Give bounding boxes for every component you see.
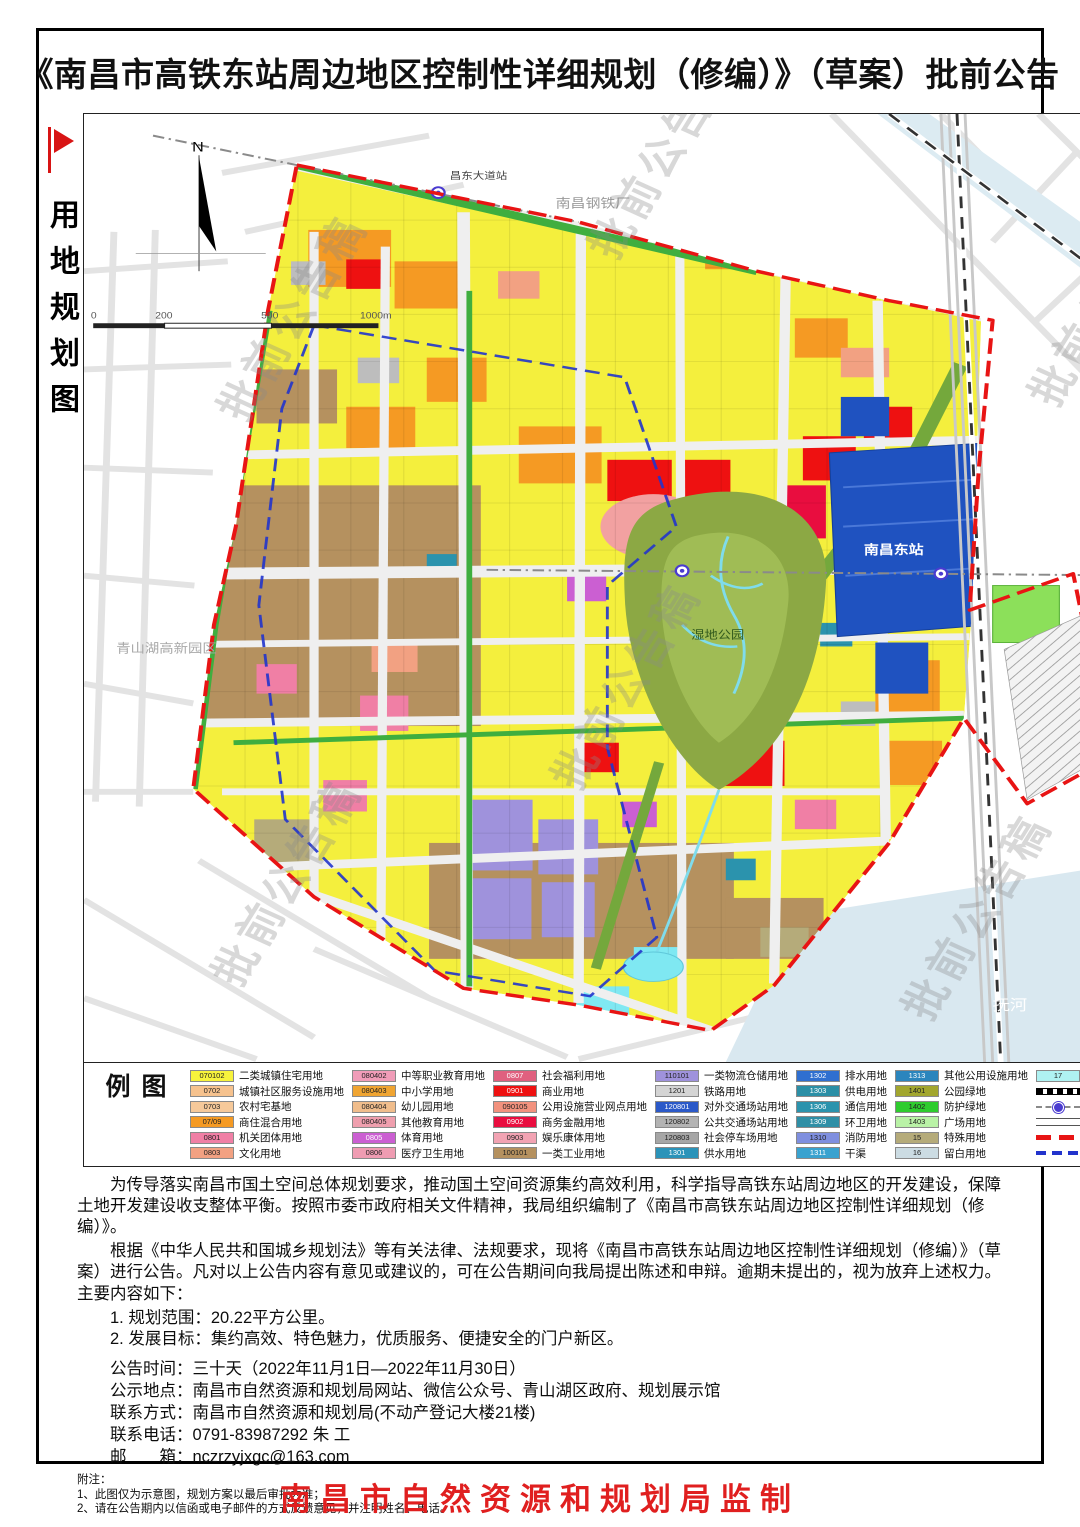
legend: 图例 070102二类城镇住宅用地0702城镇社区服务设施用地0703农村宅基地… [84, 1062, 1080, 1166]
legend-item: 080402中等职业教育用地 [352, 1069, 485, 1082]
legend-item-label: 环卫用地 [845, 1115, 887, 1130]
legend-item: 120801对外交通场站用地 [655, 1100, 788, 1113]
map-frame: 南昌钢铁厂 青山湖高新园区 抚河 昌东大道站 南昌东站 湿地公园 批前公告稿 批… [83, 113, 1080, 1167]
legend-column: 080402中等职业教育用地080403中小学用地080404幼儿园用地0804… [352, 1069, 485, 1162]
legend-item: 0703农村宅基地 [190, 1100, 344, 1113]
legend-column: 17陆地水域铁路地铁线及站点城市道路规划范围核心区范围 [1036, 1069, 1080, 1162]
legend-swatch: 15 [895, 1132, 939, 1144]
schedule-label: 公告时间： [110, 1360, 193, 1378]
legend-swatch: 100101 [493, 1147, 537, 1159]
schedule-line: 邮 箱：nczrzyjxgc@163.com [110, 1447, 1007, 1469]
railway-symbol-icon [1036, 1085, 1080, 1097]
schedule-line: 联系方式：南昌市自然资源和规划局(不动产登记大楼21楼) [110, 1403, 1007, 1425]
legend-swatch: 080402 [352, 1070, 396, 1082]
legend-item-label: 商住混合用地 [239, 1115, 302, 1130]
legend-swatch: 1310 [796, 1132, 840, 1144]
legend-item: 15特殊用地 [895, 1131, 1028, 1144]
legend-item-label: 留白用地 [944, 1146, 986, 1161]
legend-item-label: 社会停车场用地 [704, 1130, 778, 1145]
legend-item-label: 通信用地 [845, 1099, 887, 1114]
plan-symbol-icon [1036, 1132, 1080, 1144]
legend-item: 100101一类工业用地 [493, 1147, 647, 1160]
legend-swatch: 1201 [655, 1085, 699, 1097]
hi-tech-zone-label: 青山湖高新园区 [116, 640, 217, 655]
legend-item-label: 二类城镇住宅用地 [239, 1068, 323, 1083]
legend-item: 16留白用地 [895, 1147, 1028, 1160]
legend-item: 120803社会停车场用地 [655, 1131, 788, 1144]
legend-item-label: 一类工业用地 [542, 1146, 605, 1161]
legend-heading: 图例 [98, 1073, 170, 1162]
legend-swatch: 120802 [655, 1116, 699, 1128]
legend-item: 1306通信用地 [796, 1100, 887, 1113]
legend-swatch: 0806 [352, 1147, 396, 1159]
legend-item-label: 公共交通场站用地 [704, 1115, 788, 1130]
legend-item-label: 城镇社区服务设施用地 [239, 1084, 344, 1099]
map-area: 南昌钢铁厂 青山湖高新园区 抚河 昌东大道站 南昌东站 湿地公园 批前公告稿 批… [84, 114, 1080, 1062]
road-symbol-icon [1036, 1116, 1080, 1128]
legend-symbol-item: 核心区范围 [1036, 1147, 1080, 1160]
legend-item: 0807社会福利用地 [493, 1069, 647, 1082]
legend-item: 07/09商住混合用地 [190, 1116, 344, 1129]
svg-text:N: N [192, 139, 204, 155]
core-symbol-icon [1036, 1147, 1080, 1159]
legend-item: 070102二类城镇住宅用地 [190, 1069, 344, 1082]
legend-swatch: 1306 [796, 1101, 840, 1113]
svg-text:200: 200 [155, 311, 172, 321]
legend-swatch: 0807 [493, 1070, 537, 1082]
legend-item: 0806医疗卫生用地 [352, 1147, 485, 1160]
legend-swatch: 0702 [190, 1085, 234, 1097]
legend-item: 17陆地水域 [1036, 1069, 1080, 1082]
landuse-map: 南昌钢铁厂 青山湖高新园区 抚河 昌东大道站 南昌东站 湿地公园 批前公告稿 批… [84, 114, 1080, 1062]
river-north [878, 114, 1080, 325]
schedule-label: 邮 箱： [110, 1448, 193, 1466]
legend-swatch: 080405 [352, 1116, 396, 1128]
legend-item-label: 一类物流仓储用地 [704, 1068, 788, 1083]
legend-item: 0902商务金融用地 [493, 1116, 647, 1129]
schedule-value: 南昌市自然资源和规划局网站、微信公众号、青山湖区政府、规划展示馆 [193, 1382, 721, 1400]
legend-item-label: 医疗卫生用地 [401, 1146, 464, 1161]
wetland-label: 湿地公园 [691, 628, 744, 642]
legend-columns: 070102二类城镇住宅用地0702城镇社区服务设施用地0703农村宅基地07/… [190, 1069, 1080, 1162]
legend-item: 0903娱乐康体用地 [493, 1131, 647, 1144]
legend-item: 090105公用设施营业网点用地 [493, 1100, 647, 1113]
legend-item-label: 商业用地 [542, 1084, 584, 1099]
legend-swatch: 07/09 [190, 1116, 234, 1128]
notice-paragraph-2: 根据《中华人民共和国城乡规划法》等有关法律、法规要求，现将《南昌市高铁东站周边地… [77, 1241, 1007, 1304]
legend-item: 080404幼儿园用地 [352, 1100, 485, 1113]
legend-swatch: 0801 [190, 1132, 234, 1144]
legend-column: 0807社会福利用地0901商业用地090105公用设施营业网点用地0902商务… [493, 1069, 647, 1162]
legend-swatch: 17 [1036, 1070, 1080, 1082]
legend-symbol-item: 城市道路 [1036, 1116, 1080, 1129]
schedule-value: 三十天（2022年11月1日—2022年11月30日） [193, 1360, 526, 1378]
schedule-value: 南昌市自然资源和规划局(不动产登记大楼21楼) [193, 1404, 536, 1422]
notice-paragraph-1: 为传导落实南昌市国土空间总体规划要求，推动国土空间资源集约高效利用，科学指导高铁… [77, 1175, 1007, 1238]
legend-item: 1311干渠 [796, 1147, 887, 1160]
legend-swatch: 070102 [190, 1070, 234, 1082]
legend-item-label: 特殊用地 [944, 1130, 986, 1145]
legend-item: 1403广场用地 [895, 1116, 1028, 1129]
legend-swatch: 0703 [190, 1101, 234, 1113]
legend-swatch: 110101 [655, 1070, 699, 1082]
legend-item-label: 消防用地 [845, 1130, 887, 1145]
legend-swatch: 1301 [655, 1147, 699, 1159]
legend-swatch: 0805 [352, 1132, 396, 1144]
station-label: 南昌东站 [864, 542, 924, 557]
legend-item-label: 体育用地 [401, 1130, 443, 1145]
legend-item: 1310消防用地 [796, 1131, 887, 1144]
legend-item: 0805体育用地 [352, 1131, 485, 1144]
notice-schedule: 公告时间：三十天（2022年11月1日—2022年11月30日）公示地点：南昌市… [77, 1359, 1007, 1469]
legend-swatch: 1309 [796, 1116, 840, 1128]
legend-swatch: 1303 [796, 1085, 840, 1097]
legend-swatch: 1302 [796, 1070, 840, 1082]
legend-symbol-item: 规划范围 [1036, 1131, 1080, 1144]
metro-symbol-icon [1036, 1101, 1080, 1113]
legend-item-label: 农村宅基地 [239, 1099, 292, 1114]
svg-text:1000m: 1000m [360, 311, 392, 321]
notice-items: 1. 规划范围：20.22平方公里。2. 发展目标：集约高效、特色魅力，优质服务… [77, 1308, 1007, 1350]
legend-swatch: 080403 [352, 1085, 396, 1097]
legend-swatch: 1402 [895, 1101, 939, 1113]
page-title: 《南昌市高铁东站周边地区控制性详细规划（修编）》（草案）批前公告 [39, 31, 1041, 113]
schedule-line: 公告时间：三十天（2022年11月1日—2022年11月30日） [110, 1359, 1007, 1381]
legend-item-label: 中等职业教育用地 [401, 1068, 485, 1083]
announcement-page: 《南昌市高铁东站周边地区控制性详细规划（修编）》（草案）批前公告 用地规划图 [0, 0, 1080, 1527]
legend-item: 1309环卫用地 [796, 1116, 887, 1129]
legend-item-label: 公园绿地 [944, 1084, 986, 1099]
legend-column: 110101一类物流仓储用地1201铁路用地120801对外交通场站用地1208… [655, 1069, 788, 1162]
legend-item-label: 娱乐康体用地 [542, 1130, 605, 1145]
legend-item-label: 供电用地 [845, 1084, 887, 1099]
content-row: 用地规划图 [39, 113, 1041, 1167]
legend-symbol-item: 地铁线及站点 [1036, 1100, 1080, 1113]
legend-item: 1401公园绿地 [895, 1085, 1028, 1098]
legend-item: 0901商业用地 [493, 1085, 647, 1098]
legend-item-label: 对外交通场站用地 [704, 1099, 788, 1114]
schedule-value: 0791-83987292 朱 工 [193, 1426, 351, 1444]
flag-icon [46, 127, 76, 173]
legend-item-label: 广场用地 [944, 1115, 986, 1130]
legend-item: 1313其他公用设施用地 [895, 1069, 1028, 1082]
legend-item-label: 排水用地 [845, 1068, 887, 1083]
legend-symbol-item: 铁路 [1036, 1085, 1080, 1098]
legend-item: 0803文化用地 [190, 1147, 344, 1160]
legend-swatch: 0902 [493, 1116, 537, 1128]
svg-text:500: 500 [261, 311, 278, 321]
legend-item: 120802公共交通场站用地 [655, 1116, 788, 1129]
legend-item-label: 文化用地 [239, 1146, 281, 1161]
legend-swatch: 0901 [493, 1085, 537, 1097]
legend-swatch: 080404 [352, 1101, 396, 1113]
legend-item-label: 干渠 [845, 1146, 866, 1161]
legend-swatch: 090105 [493, 1101, 537, 1113]
legend-column: 070102二类城镇住宅用地0702城镇社区服务设施用地0703农村宅基地07/… [190, 1069, 344, 1162]
legend-item: 080403中小学用地 [352, 1085, 485, 1098]
legend-item-label: 供水用地 [704, 1146, 746, 1161]
legend-swatch: 16 [895, 1147, 939, 1159]
metro-station-label: 昌东大道站 [450, 170, 508, 182]
notice-item: 1. 规划范围：20.22平方公里。 [110, 1308, 1007, 1329]
left-sidebar: 用地规划图 [39, 113, 83, 1167]
notice-item: 2. 发展目标：集约高效、特色魅力，优质服务、便捷安全的门户新区。 [110, 1329, 1007, 1350]
map-type-label: 用地规划图 [39, 199, 83, 429]
legend-swatch: 120801 [655, 1101, 699, 1113]
river-label: 抚河 [993, 997, 1027, 1014]
legend-item: 1302排水用地 [796, 1069, 887, 1082]
legend-swatch: 1403 [895, 1116, 939, 1128]
legend-item: 0702城镇社区服务设施用地 [190, 1085, 344, 1098]
legend-item-label: 其他公用设施用地 [944, 1068, 1028, 1083]
schedule-line: 公示地点：南昌市自然资源和规划局网站、微信公众号、青山湖区政府、规划展示馆 [110, 1381, 1007, 1403]
legend-item-label: 商务金融用地 [542, 1115, 605, 1130]
legend-item: 1301供水用地 [655, 1147, 788, 1160]
legend-item: 1402防护绿地 [895, 1100, 1028, 1113]
legend-swatch: 1313 [895, 1070, 939, 1082]
footer-issuer: 南昌市自然资源和规划局监制 [0, 1474, 1080, 1519]
legend-column: 1313其他公用设施用地1401公园绿地1402防护绿地1403广场用地15特殊… [895, 1069, 1028, 1162]
legend-item-label: 防护绿地 [944, 1099, 986, 1114]
svg-text:0: 0 [91, 311, 97, 321]
schedule-value: nczrzyjxgc@163.com [193, 1448, 350, 1466]
legend-swatch: 1311 [796, 1147, 840, 1159]
svg-text:批前公告稿: 批前公告稿 [579, 114, 749, 266]
legend-item-label: 其他教育用地 [401, 1115, 464, 1130]
legend-item-label: 中小学用地 [401, 1084, 454, 1099]
legend-swatch: 1401 [895, 1085, 939, 1097]
legend-item: 110101一类物流仓储用地 [655, 1069, 788, 1082]
legend-item-label: 机关团体用地 [239, 1130, 302, 1145]
legend-item-label: 社会福利用地 [542, 1068, 605, 1083]
legend-item: 1201铁路用地 [655, 1085, 788, 1098]
notice-section: 为传导落实南昌市国土空间总体规划要求，推动国土空间资源集约高效利用，科学指导高铁… [39, 1167, 1041, 1517]
legend-swatch: 0903 [493, 1132, 537, 1144]
legend-column: 1302排水用地1303供电用地1306通信用地1309环卫用地1310消防用地… [796, 1069, 887, 1162]
legend-item-label: 公用设施营业网点用地 [542, 1099, 647, 1114]
legend-swatch: 120803 [655, 1132, 699, 1144]
legend-swatch: 0803 [190, 1147, 234, 1159]
schedule-label: 联系方式： [110, 1404, 193, 1422]
legend-item: 0801机关团体用地 [190, 1131, 344, 1144]
legend-item-label: 幼儿园用地 [401, 1099, 454, 1114]
schedule-line: 联系电话：0791-83987292 朱 工 [110, 1425, 1007, 1447]
schedule-label: 公示地点： [110, 1382, 193, 1400]
schedule-label: 联系电话： [110, 1426, 193, 1444]
legend-item: 080405其他教育用地 [352, 1116, 485, 1129]
legend-item: 1303供电用地 [796, 1085, 887, 1098]
outer-frame: 《南昌市高铁东站周边地区控制性详细规划（修编）》（草案）批前公告 用地规划图 [36, 28, 1044, 1464]
legend-item-label: 铁路用地 [704, 1084, 746, 1099]
